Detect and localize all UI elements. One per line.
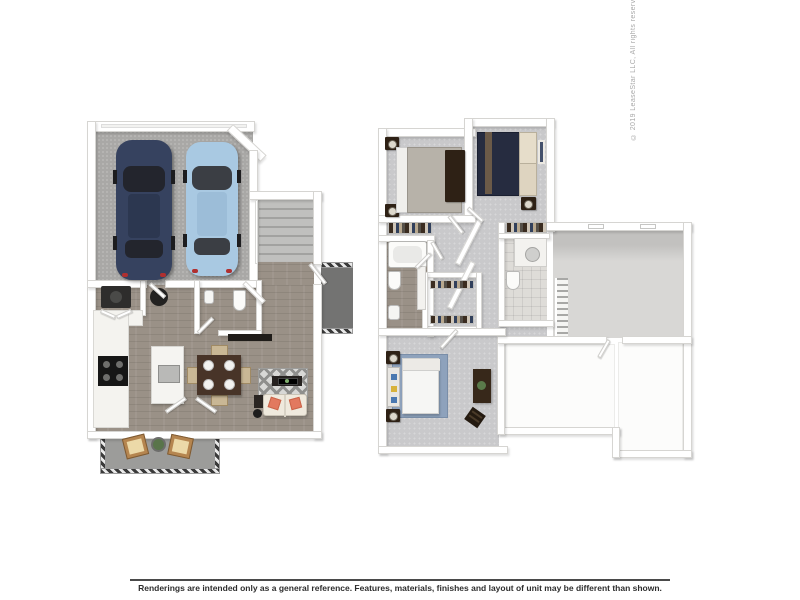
bed3-nightstand bbox=[521, 197, 536, 210]
floorplan-image: © 2019 LeaseStar LLC, All rights reserve… bbox=[0, 0, 800, 600]
loft-stair-railing bbox=[555, 278, 568, 338]
closet1-clothes bbox=[388, 222, 432, 234]
second-floor-plan bbox=[0, 0, 800, 600]
loft-floor bbox=[553, 231, 683, 338]
walkin-clothes-top bbox=[430, 280, 474, 289]
master-desk bbox=[473, 369, 491, 403]
right-bay-floor bbox=[618, 342, 683, 452]
bed2-dresser bbox=[445, 150, 465, 202]
master-bottom-wall bbox=[378, 446, 508, 454]
master-nightstand-bottom bbox=[386, 409, 400, 422]
bedroom2-top-wall bbox=[378, 128, 476, 137]
bath2-sink bbox=[388, 305, 400, 320]
master-nightstand-top bbox=[386, 351, 400, 364]
master-bed bbox=[402, 358, 439, 414]
open-below-left-wall bbox=[497, 336, 505, 435]
loft-top-wall bbox=[546, 222, 692, 231]
bedroom-divider-wall bbox=[464, 118, 473, 220]
bathroom3-bottom-wall bbox=[498, 320, 554, 327]
loft-window-1 bbox=[588, 224, 604, 229]
walkin-right-wall bbox=[476, 272, 482, 332]
bedroom3-right-wall bbox=[546, 118, 555, 232]
walkin-top-wall bbox=[422, 272, 480, 278]
closet2-clothes bbox=[506, 222, 547, 233]
bed3-wall-art bbox=[538, 140, 545, 164]
bath3-toilet bbox=[506, 271, 520, 290]
sf-left-outer-wall bbox=[378, 128, 387, 454]
walkin-clothes-bottom bbox=[430, 315, 474, 324]
master-top-wall bbox=[378, 328, 506, 336]
loft-bottom-wall-left bbox=[497, 336, 607, 344]
sf-bottom-right-wall bbox=[612, 450, 692, 458]
loft-bottom-wall-right bbox=[622, 336, 692, 344]
loft-window-2 bbox=[640, 224, 656, 229]
bed3 bbox=[477, 132, 535, 194]
right-bay-step-wall bbox=[612, 427, 620, 458]
disclaimer-divider bbox=[130, 579, 670, 581]
open-below-bottom-wall bbox=[498, 427, 620, 435]
bath2-toilet bbox=[388, 271, 401, 290]
bath2-vanity bbox=[417, 266, 426, 310]
disclaimer-text: Renderings are intended only as a genera… bbox=[0, 583, 800, 593]
copyright-text: © 2019 LeaseStar LLC, All rights reserve… bbox=[630, 6, 637, 140]
master-dresser bbox=[387, 367, 400, 407]
bath3-vanity bbox=[514, 238, 547, 267]
bedroom3-top-wall bbox=[464, 118, 554, 127]
